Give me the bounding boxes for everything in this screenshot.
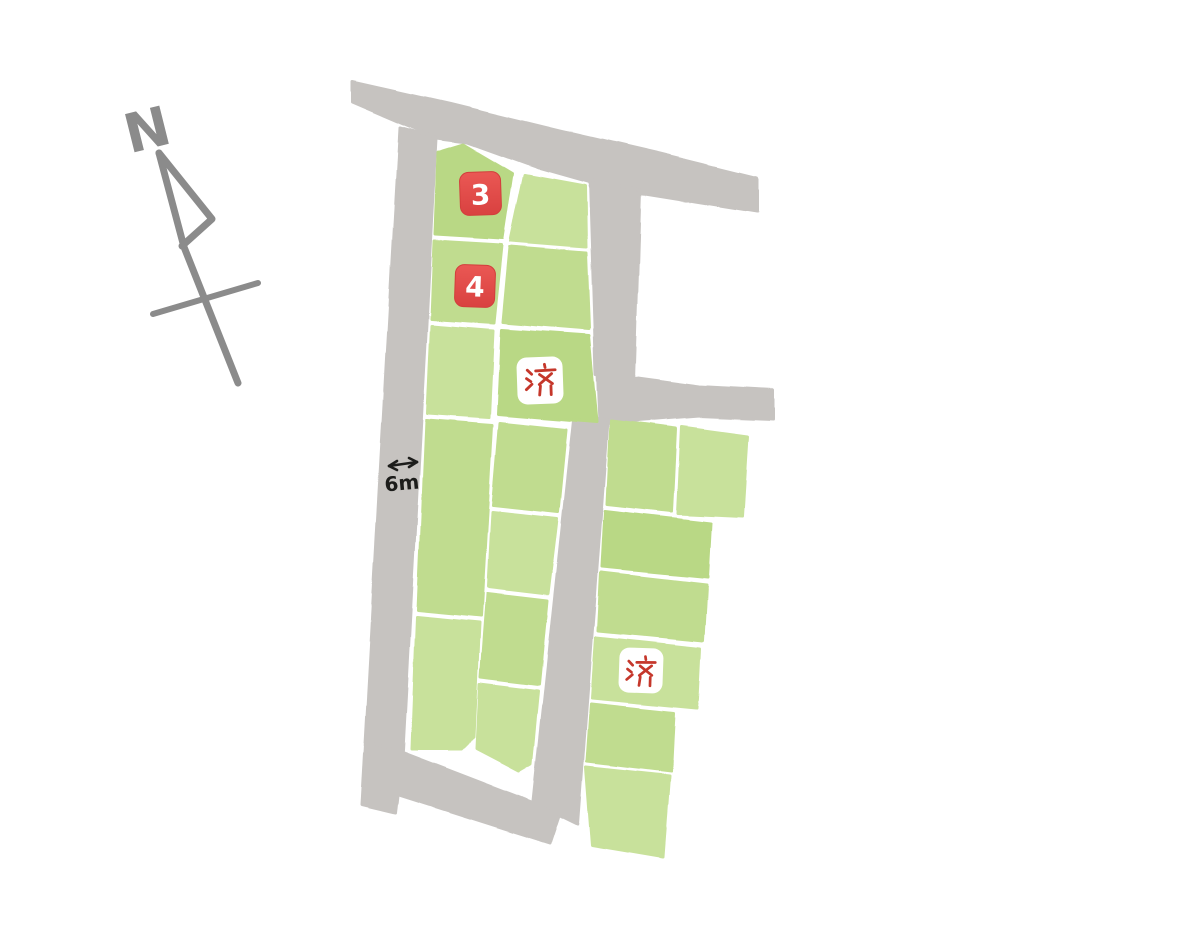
lot-polygon: [427, 326, 493, 417]
lot-polygon: [481, 594, 547, 684]
sold-badge: [516, 356, 564, 405]
compass-north-label: N: [118, 94, 177, 166]
lot-polygon: [678, 427, 748, 516]
lot-polygon: [503, 247, 589, 329]
lot-4-badge: 4: [454, 264, 495, 307]
compass: N: [118, 94, 258, 383]
lot-polygon: [586, 767, 669, 857]
lot-polygon: [418, 420, 492, 616]
road-branch-east: [598, 372, 773, 424]
lot-3-badge: 3: [459, 171, 501, 215]
lot-polygon: [477, 684, 538, 771]
lot-3-number: 3: [470, 178, 491, 212]
map-canvas: 3 4 6m N: [0, 0, 1200, 938]
lot-polygon: [587, 704, 674, 771]
lot-4-number: 4: [465, 270, 486, 304]
plot-map-svg: 3 4 6m N: [0, 0, 1200, 938]
road-width-label: 6m: [383, 470, 420, 497]
road-center-upper: [590, 180, 640, 380]
lot-polygon: [511, 175, 586, 247]
lot-polygon: [607, 421, 676, 511]
lot-polygon: [602, 511, 710, 577]
lot-polygon: [412, 617, 479, 749]
lot-polygon: [598, 573, 706, 641]
compass-arrow-icon: [153, 153, 258, 383]
lot-polygon: [488, 512, 557, 594]
east-block-lots: [586, 421, 748, 857]
lot-polygon: [493, 423, 566, 512]
sold-badge: [618, 647, 664, 694]
